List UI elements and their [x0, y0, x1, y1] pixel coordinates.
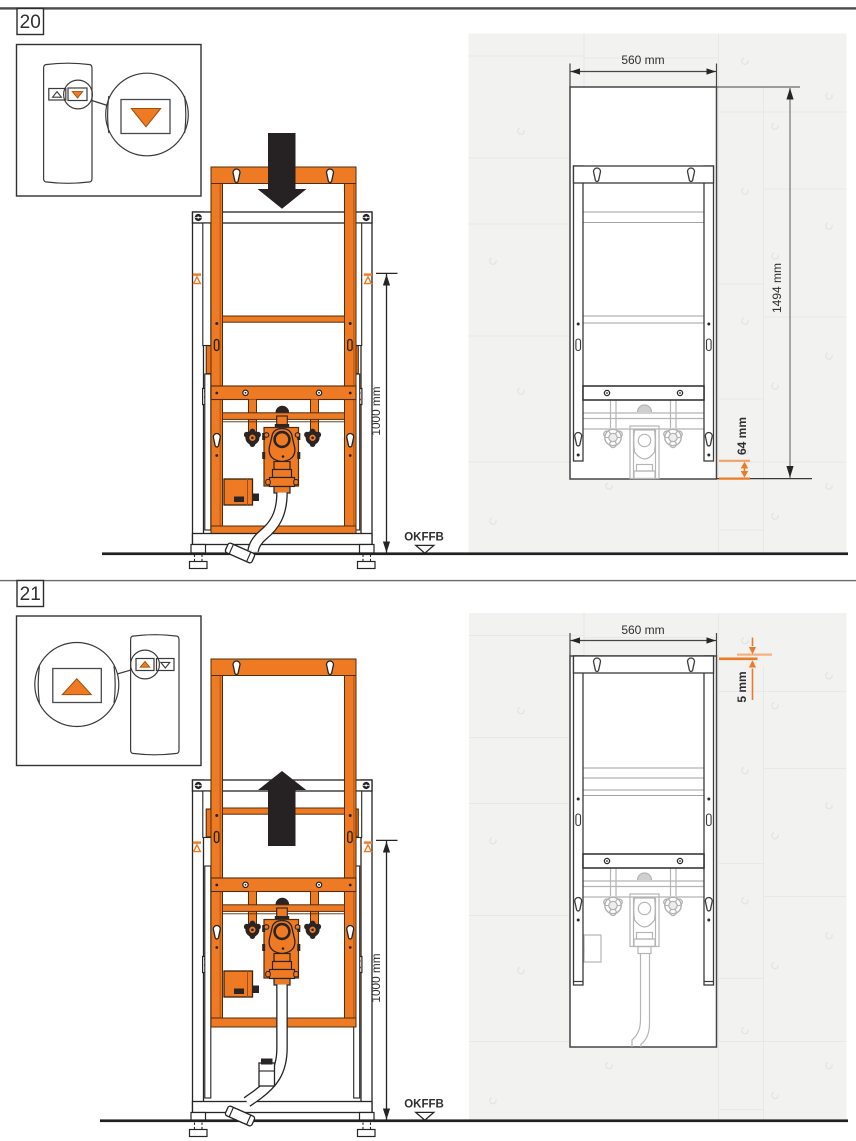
svg-text:20: 20	[20, 12, 41, 33]
svg-text:5 mm: 5 mm	[735, 671, 749, 702]
svg-text:560 mm: 560 mm	[621, 53, 664, 67]
svg-text:560 mm: 560 mm	[621, 623, 664, 637]
svg-text:64 mm: 64 mm	[735, 417, 749, 455]
svg-text:1494 mm: 1494 mm	[770, 263, 784, 313]
svg-text:OKFFB: OKFFB	[404, 532, 444, 544]
svg-text:OKFFB: OKFFB	[404, 1099, 444, 1111]
svg-text:21: 21	[20, 584, 41, 605]
svg-text:1000 mm: 1000 mm	[369, 386, 383, 435]
svg-text:1000 mm: 1000 mm	[369, 953, 383, 1002]
